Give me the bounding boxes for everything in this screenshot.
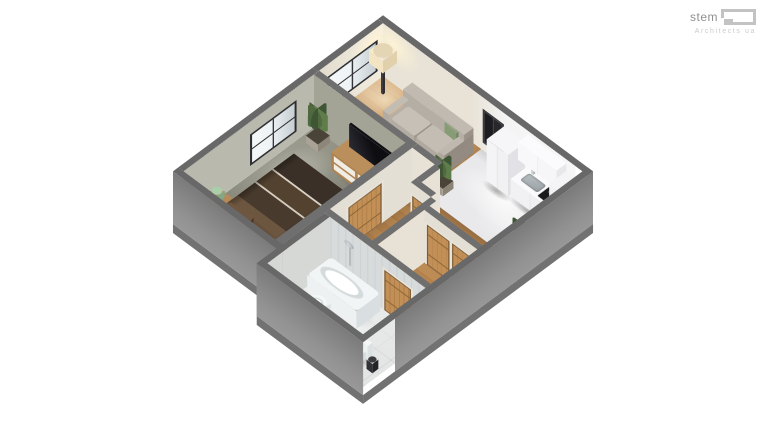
brand-tagline: Architects ua xyxy=(695,28,756,35)
floor-plan-render: stem Architects ua xyxy=(0,0,768,432)
brand-logo: stem Architects ua xyxy=(690,9,756,35)
brand-name: stem xyxy=(690,11,718,23)
brand-logo-row: stem xyxy=(690,9,756,25)
brand-logo-mark-icon xyxy=(721,9,756,25)
